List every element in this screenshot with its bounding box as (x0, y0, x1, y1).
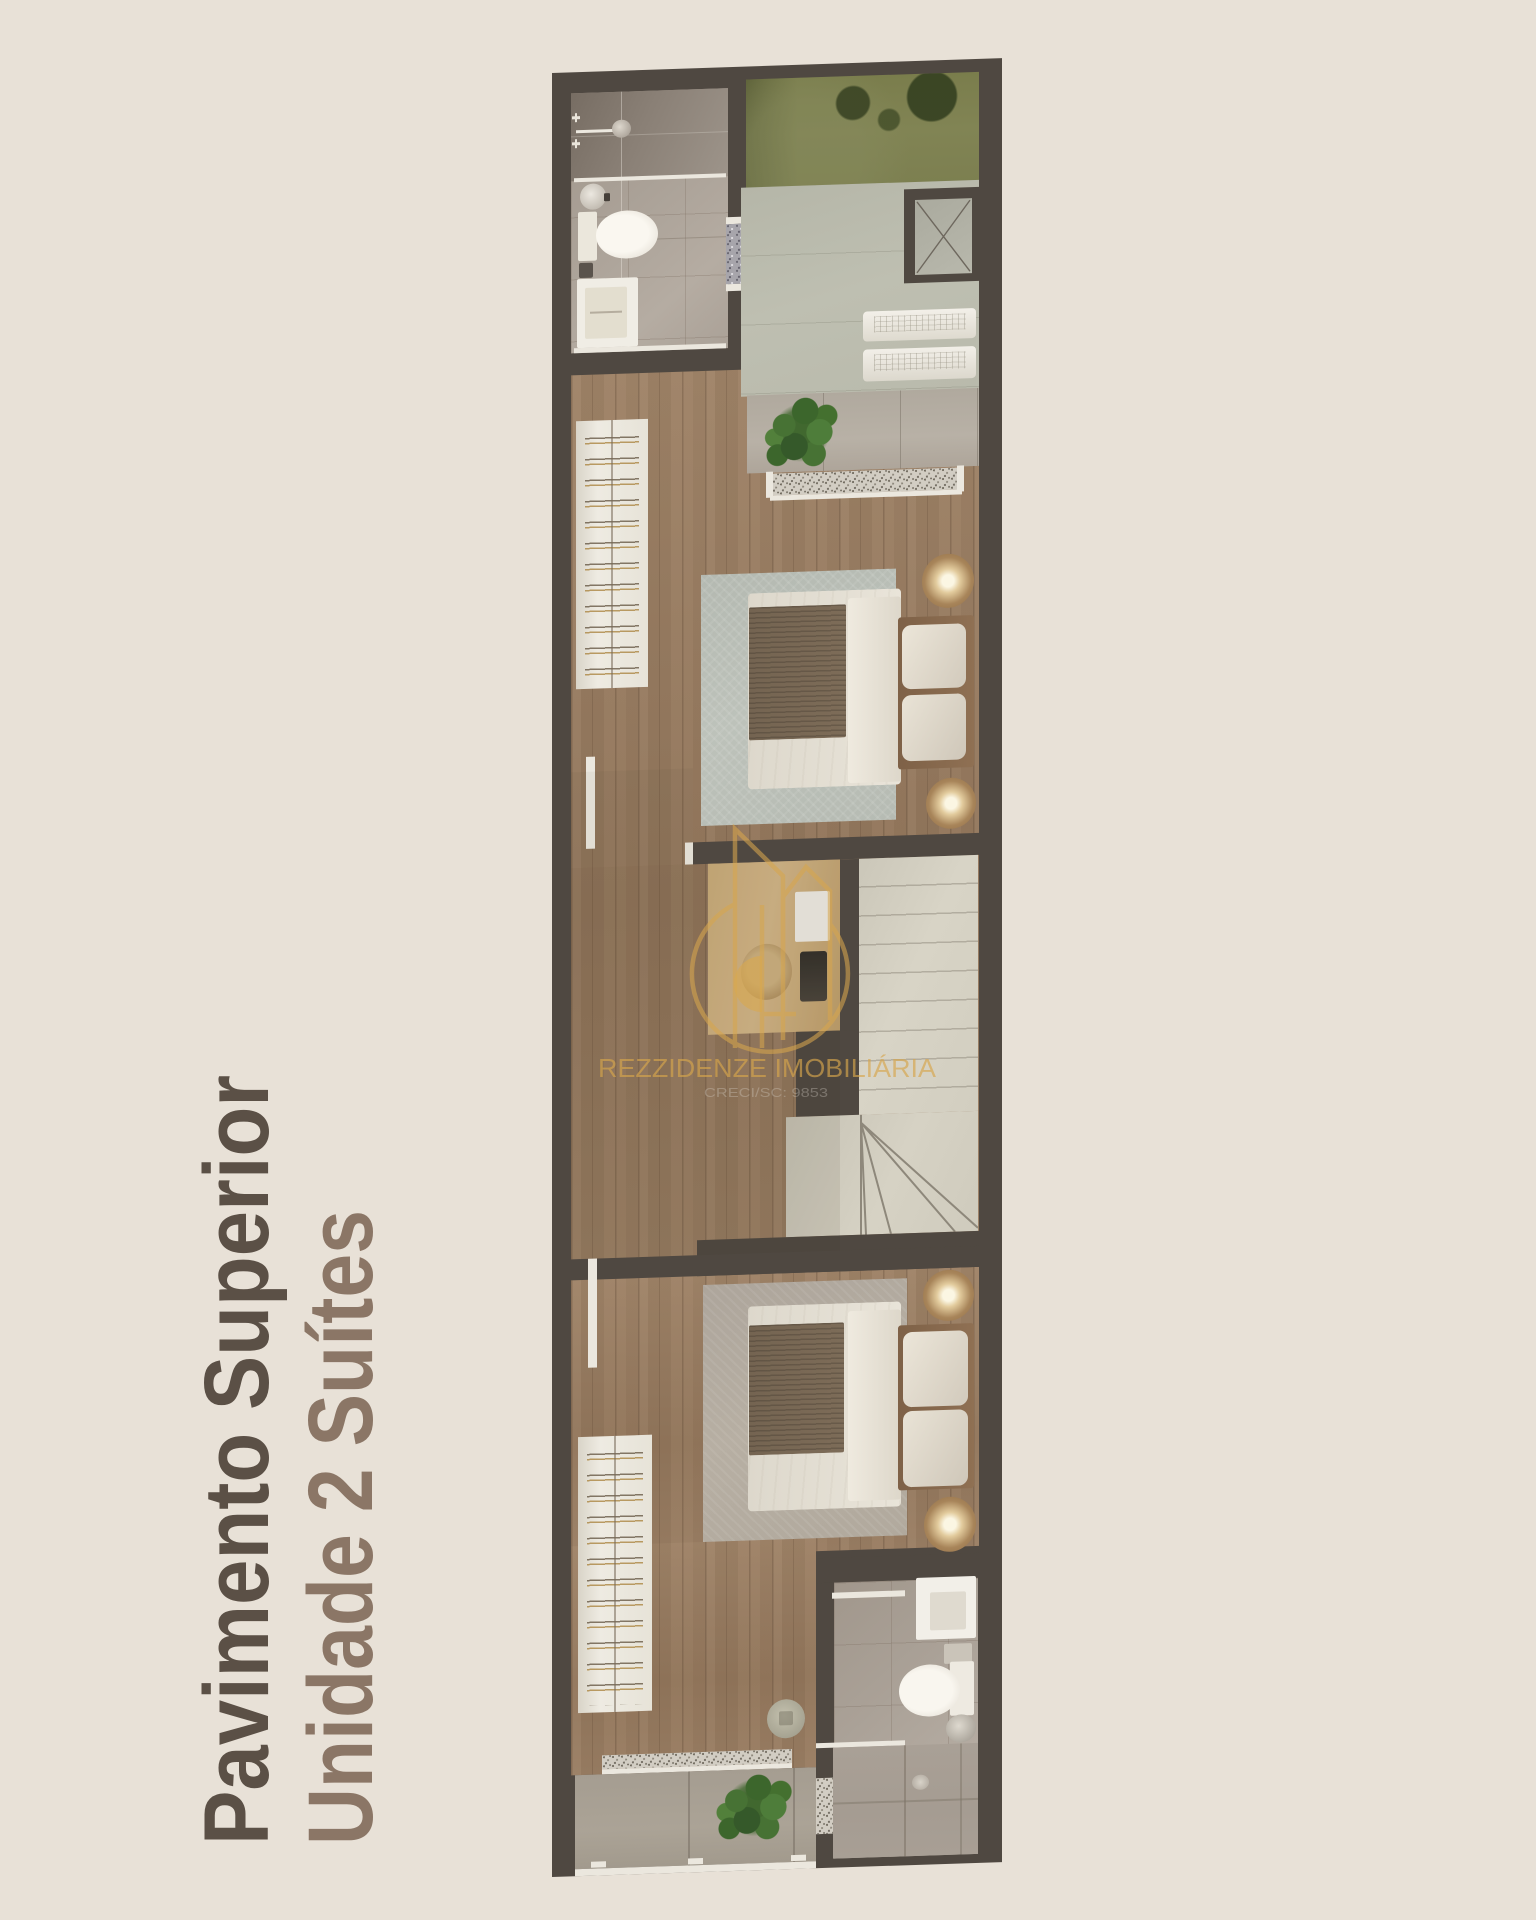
svg-text:REZZIDENZE IMOBILIÁRIA: REZZIDENZE IMOBILIÁRIA (598, 1053, 937, 1083)
svg-text:CRECI/SC: 9853: CRECI/SC: 9853 (704, 1086, 828, 1100)
svg-text:Unidade 2 Suítes: Unidade 2 Suítes (290, 1210, 392, 1845)
svg-text:Pavimento Superior: Pavimento Superior (186, 1075, 288, 1845)
